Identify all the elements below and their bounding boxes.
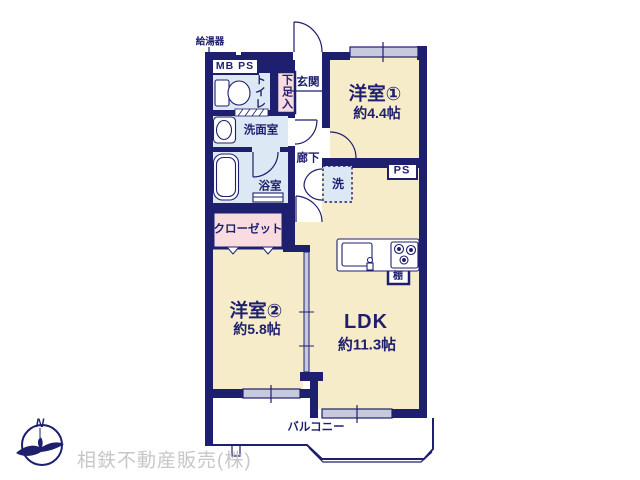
wall-slider-pocket — [300, 372, 323, 381]
washroom-door-swing — [295, 120, 317, 144]
wall-washroom-bath-right — [280, 147, 288, 152]
room1-name-label: 洋室① — [349, 85, 402, 104]
floorplan-drawing — [0, 0, 640, 480]
company-name-label: 相鉄不動産販売(株) — [77, 452, 252, 471]
washroom-label: 洗面室 — [244, 125, 279, 137]
wall-room2-bottom-left — [205, 389, 243, 398]
stove-burner-dot — [398, 248, 401, 251]
kitchen-faucet-icon — [368, 258, 373, 263]
room2-name-label: 洋室② — [230, 302, 283, 321]
vanity-basin-icon — [217, 121, 232, 140]
washer-bifold-doors — [304, 169, 322, 200]
room1-size-label: 約4.4帖 — [353, 106, 400, 120]
wall-washroom-bath-left — [213, 147, 252, 152]
water-heater-label: 給湯器 — [196, 37, 225, 47]
wall-closet-to-slider — [283, 245, 310, 252]
opening-washroom — [288, 118, 295, 146]
stove-burner-dot — [410, 249, 413, 252]
entrance-door-swing — [294, 22, 322, 52]
ldk-size-label: 約11.3帖 — [338, 338, 396, 353]
compass-n-label: N — [36, 417, 45, 429]
balcony-label: バルコニー — [287, 422, 344, 434]
shoe-cabinet-label: 下足入 — [281, 74, 292, 110]
window-room1-top — [350, 47, 418, 57]
water-heater-notch — [236, 49, 241, 55]
wall-slider-pocket-vert — [310, 381, 318, 418]
wall-ldk-bottom — [392, 409, 427, 418]
closet-label: クローゼット — [214, 224, 283, 236]
wall-right — [419, 46, 427, 418]
toilet-door-hatch — [235, 109, 268, 116]
kitchen-faucet-base-icon — [367, 263, 373, 270]
corridor-label: 廊下 — [297, 153, 320, 165]
opening-room1 — [322, 128, 330, 158]
compass-logo — [16, 425, 64, 465]
ps-label: PS — [394, 166, 411, 177]
shelf-label: 棚 — [393, 272, 403, 282]
entrance-label: 玄関 — [297, 77, 320, 89]
bathtub-inner-icon — [217, 158, 236, 197]
toilet-bowl-icon — [228, 81, 250, 105]
wall-closet-right — [283, 212, 295, 248]
opening-entrance — [293, 52, 322, 60]
bathroom-label: 浴室 — [259, 181, 282, 193]
wall-genkan-room1 — [322, 52, 330, 130]
toilet-tank-icon — [215, 80, 229, 106]
mb-ps-label: MB PS — [216, 61, 254, 72]
washer-label: 洗 — [332, 178, 344, 190]
stove-burner-dot — [403, 259, 406, 262]
ldk-name-label: LDK — [344, 312, 388, 332]
room2-size-label: 約5.8帖 — [233, 322, 280, 336]
floorplan-page: 給湯器 MB PS 玄関 トイレ 下足入 洋室① 約4.4帖 洗面室 廊下 浴室… — [0, 0, 640, 480]
toilet-label: トイレ — [254, 74, 265, 110]
